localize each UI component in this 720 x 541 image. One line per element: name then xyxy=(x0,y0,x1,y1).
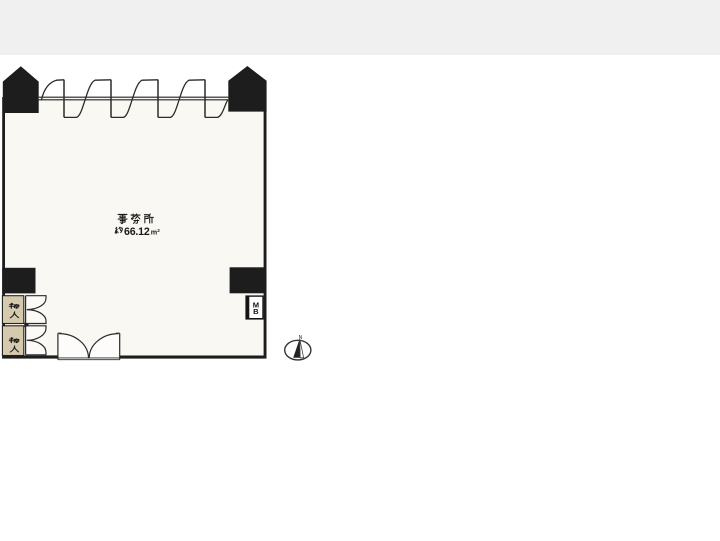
svg-text:66.12: 66.12 xyxy=(124,226,150,238)
svg-text:B: B xyxy=(253,307,259,316)
svg-text:N: N xyxy=(299,335,303,341)
